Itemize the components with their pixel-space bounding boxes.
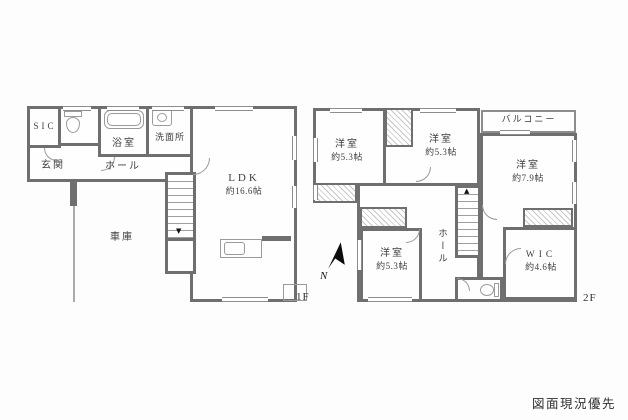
room-size: 約5.3帖 xyxy=(376,261,408,272)
room-label-wic: WIC 約4.6帖 xyxy=(525,250,557,273)
wall xyxy=(146,106,149,157)
window xyxy=(368,297,412,302)
staircase-2f xyxy=(455,185,481,258)
floor-label-1f: 1F xyxy=(296,291,310,303)
room-name: バルコニー xyxy=(502,114,557,125)
closet-bedroom-nw xyxy=(385,108,413,147)
kitchen-sink-icon xyxy=(224,242,245,255)
window xyxy=(313,185,318,200)
window xyxy=(500,130,530,135)
window xyxy=(107,106,139,111)
floor-label-2f: 2F xyxy=(583,292,597,304)
window xyxy=(572,182,577,204)
window xyxy=(292,186,297,208)
wall xyxy=(58,106,61,148)
room-name: 玄関 xyxy=(41,160,65,173)
room-label-hall-1f: ホール xyxy=(105,161,141,174)
room-label-bedroom-s: 洋室 約5.3帖 xyxy=(376,248,408,272)
north-arrow-icon xyxy=(328,241,348,271)
room-name: 洋室 xyxy=(512,160,544,173)
room-label-balcony: バルコニー xyxy=(502,114,557,125)
wall xyxy=(98,106,101,155)
room-name: ホール xyxy=(434,228,448,266)
understair-storage xyxy=(165,238,196,274)
window xyxy=(152,106,184,111)
room-name: WIC xyxy=(525,250,557,262)
wall xyxy=(70,179,77,206)
closet-nw-strip xyxy=(313,183,357,203)
room-size: 約5.3帖 xyxy=(425,147,457,158)
wall xyxy=(61,143,100,146)
room-size: 約7.9帖 xyxy=(512,173,544,184)
drawing-priority-note: 図面現況優先 xyxy=(532,393,616,412)
room-name: 洋室 xyxy=(331,139,363,152)
toilet-bowl-icon xyxy=(480,284,494,296)
stairs-down-arrow-icon: ▼ xyxy=(176,228,181,235)
window xyxy=(313,138,318,162)
room-size: 約5.3帖 xyxy=(331,152,363,163)
window xyxy=(572,140,577,162)
garage-boundary-line xyxy=(73,206,75,302)
window xyxy=(222,297,268,302)
room-name: 洋室 xyxy=(425,134,457,147)
closet-bedroom-s xyxy=(360,207,407,228)
wall xyxy=(262,236,291,241)
room-size: 約16.6帖 xyxy=(226,186,263,197)
room-name: 洗面所 xyxy=(155,132,185,143)
stairs-up-arrow-icon: ▲ xyxy=(464,188,469,195)
bathtub-inner-line xyxy=(107,113,141,126)
room-label-entrance: 玄関 xyxy=(41,160,65,173)
closet-wic xyxy=(523,208,573,227)
room-name: LDK xyxy=(226,172,263,186)
room-name: 浴室 xyxy=(112,138,136,151)
room-label-bedroom-nw: 洋室 約5.3帖 xyxy=(331,139,363,163)
room-label-bath: 浴室 xyxy=(112,138,136,151)
room-name: ホール xyxy=(105,161,141,174)
room-name: 洋室 xyxy=(376,248,408,261)
toilet-tank-icon xyxy=(494,283,499,297)
compass: N xyxy=(316,238,360,290)
room-label-bedroom-n: 洋室 約5.3帖 xyxy=(425,134,457,158)
window xyxy=(330,108,362,113)
room-label-sic: SIC xyxy=(33,121,56,132)
room-label-washroom: 洗面所 xyxy=(155,132,185,143)
room-size: 約4.6帖 xyxy=(525,262,557,273)
washbasin-bowl-icon xyxy=(157,113,167,122)
window xyxy=(292,136,297,160)
window xyxy=(420,108,456,113)
window xyxy=(63,106,91,111)
room-ldk xyxy=(190,106,297,302)
room-label-hall-2f: ホール xyxy=(434,228,448,271)
room-label-ldk: LDK 約16.6帖 xyxy=(226,172,263,197)
window xyxy=(215,106,253,111)
north-label: N xyxy=(320,270,327,282)
room-name: SIC xyxy=(33,121,56,132)
room-label-bedroom-e: 洋室 約7.9帖 xyxy=(512,160,544,184)
room-label-garage: 車庫 xyxy=(110,232,134,245)
room-name: 車庫 xyxy=(110,232,134,245)
